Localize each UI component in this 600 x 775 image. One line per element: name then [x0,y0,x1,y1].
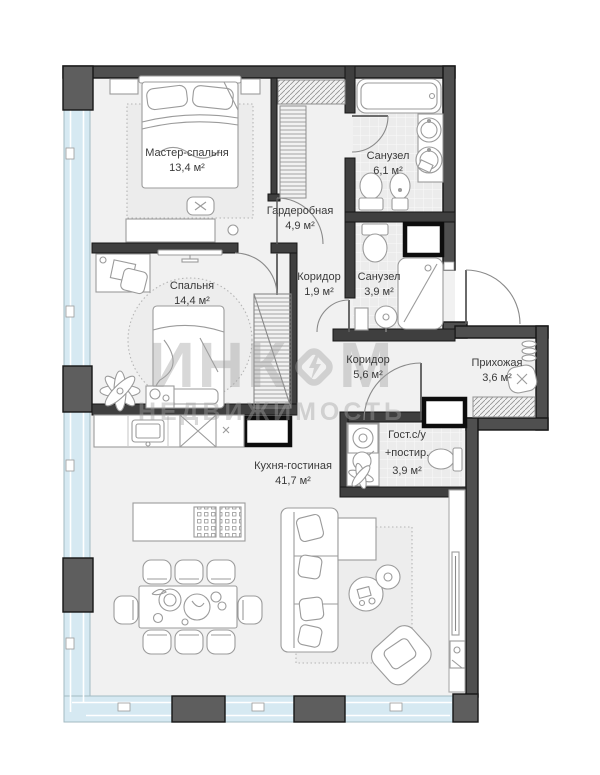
bathtub [357,79,441,113]
room-area: 13,4 м² [145,161,228,176]
sofa [281,508,338,652]
shower-tub [398,258,443,329]
lamp [228,225,238,235]
room-area: 3,6 м² [472,371,523,386]
room-name: Санузел [367,149,410,164]
nightstand [110,79,138,94]
doormat [473,397,535,417]
room-name: Прихожая [472,356,523,371]
shelf-rack [280,106,306,198]
toilet [362,224,388,262]
room-name: Мастер-спальня [145,146,228,161]
dining-table [139,586,237,628]
room-area: 4,9 м² [267,219,334,234]
kitchen-counter [94,415,244,447]
washing-machine [348,424,378,453]
room-label-wardrobe: Гардеробная 4,9 м² [267,204,334,234]
kitchen-sink [132,420,164,442]
shaft-box [245,418,290,445]
room-label-bedroom: Спальня 14,4 м² [170,279,214,309]
plant [100,371,140,411]
room-name: Кухня-гостиная [254,459,332,474]
room-label-kitchen-living: Кухня-гостиная 41,7 м² [254,459,332,489]
kitchen-island [133,503,245,541]
room-name: Коридор [346,353,389,368]
room-name: Гост.с/у [385,426,429,444]
coat-hooks [522,341,536,361]
room-area: 1,9 м² [297,285,340,300]
room-area: 6,1 м² [367,164,410,179]
shaft-box [424,399,465,426]
room-label-bathroom-1: Санузел 6,1 м² [367,149,410,179]
room-label-hallway: Прихожая 3,6 м² [472,356,523,386]
nightstand [241,79,260,94]
room-name: Спальня [170,279,214,294]
room-label-bathroom-2: Санузел 3,9 м² [358,270,401,300]
hanging-rack [278,80,345,104]
room-area: 5,6 м² [346,368,389,383]
room-name-2: +постир. [385,444,429,462]
room-area: 41,7 м² [254,474,332,489]
nightstand [146,386,174,408]
cabinet [355,308,368,330]
room-name: Санузел [358,270,401,285]
room-label-corridor-1: Коридор 1,9 м² [297,270,340,300]
round-sink [417,118,441,142]
hob [180,415,216,447]
closet [254,294,291,408]
room-name: Коридор [297,270,340,285]
side-table [338,518,376,560]
room-name: Гардеробная [267,204,334,219]
stool [187,197,214,215]
room-label-guest-wc: Гост.с/у +постир. 3,9 м² [385,426,429,480]
room-label-corridor-2: Коридор 5,6 м² [346,353,389,383]
room-area: 3,9 м² [358,285,401,300]
entrance-door [444,262,520,324]
toilet [428,448,462,471]
room-area: 14,4 м² [170,294,214,309]
shaft-box [405,224,442,255]
dresser [126,219,215,242]
floor-plan-drawing [0,0,600,775]
tv-console [449,490,465,692]
room-area: 3,9 м² [385,462,429,480]
room-label-master-bedroom: Мастер-спальня 13,4 м² [145,146,228,176]
floor-plan: ИНК М НЕДВИЖИМОСТЬ Мастер-спальня 13,4 м… [0,0,600,775]
